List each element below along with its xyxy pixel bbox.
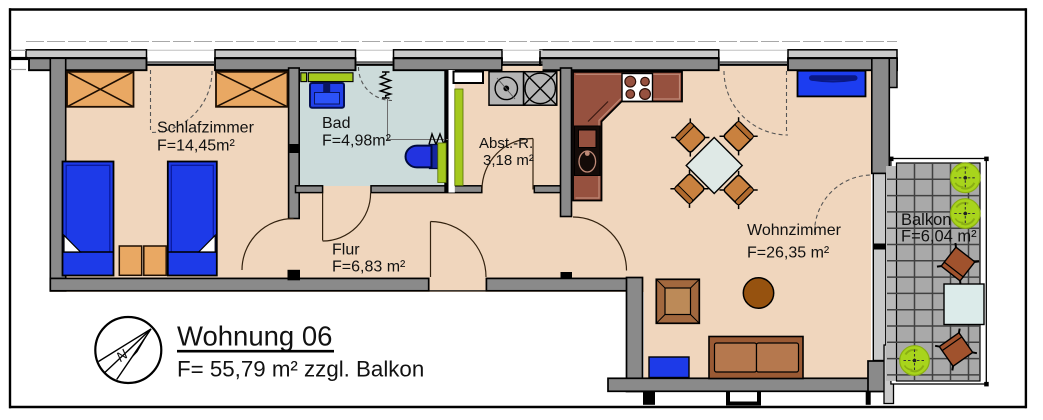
svg-text:F=6,83 m²: F=6,83 m² xyxy=(332,259,406,276)
svg-text:F= 55,79 m² zzgl. Balkon: F= 55,79 m² zzgl. Balkon xyxy=(177,356,424,381)
svg-text:Balkon: Balkon xyxy=(901,211,951,229)
svg-text:3,18 m²: 3,18 m² xyxy=(483,152,534,169)
svg-text:Wohnung 06: Wohnung 06 xyxy=(177,321,332,352)
svg-text:Abst.-R.: Abst.-R. xyxy=(479,135,533,152)
svg-text:F=4,98m²: F=4,98m² xyxy=(322,133,392,150)
svg-text:F=14,45m²: F=14,45m² xyxy=(157,138,235,155)
svg-text:F=6,04 m²: F=6,04 m² xyxy=(901,228,977,246)
svg-text:Wohnzimmer: Wohnzimmer xyxy=(747,222,842,239)
svg-text:Schlafzimmer: Schlafzimmer xyxy=(157,120,255,137)
svg-text:F=26,35 m²: F=26,35 m² xyxy=(747,245,830,262)
svg-text:Flur: Flur xyxy=(332,242,360,259)
svg-text:Bad: Bad xyxy=(322,115,350,132)
